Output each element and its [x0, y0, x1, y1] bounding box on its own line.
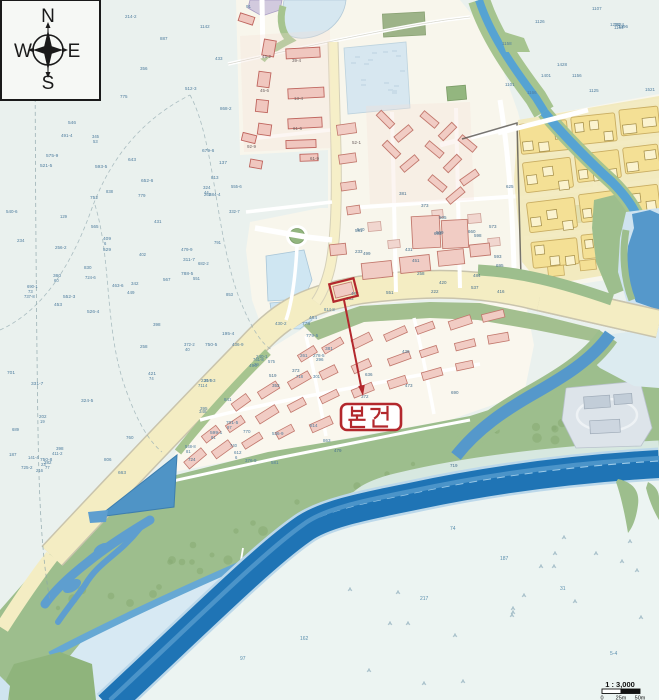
- svg-text:565: 565: [91, 224, 99, 229]
- svg-text:373: 373: [292, 368, 300, 373]
- svg-text:725-2: 725-2: [21, 465, 33, 470]
- svg-text:416: 416: [497, 289, 505, 294]
- svg-text:724: 724: [188, 457, 196, 462]
- svg-text:195-4: 195-4: [222, 331, 235, 337]
- svg-text:214-2: 214-2: [125, 14, 137, 19]
- svg-text:381: 381: [399, 191, 407, 196]
- svg-text:31: 31: [560, 586, 566, 592]
- svg-text:479: 479: [334, 448, 342, 453]
- svg-text:1125: 1125: [589, 88, 599, 93]
- svg-text:162: 162: [300, 636, 309, 642]
- svg-text:1126: 1126: [535, 19, 545, 24]
- svg-text:1401: 1401: [541, 73, 552, 78]
- svg-text:551: 551: [386, 290, 394, 295]
- svg-text:679-6: 679-6: [202, 148, 215, 154]
- svg-text:529: 529: [103, 247, 111, 253]
- svg-text:536-9: 536-9: [272, 431, 284, 436]
- svg-text:752: 752: [90, 195, 98, 201]
- svg-text:433: 433: [215, 56, 223, 61]
- svg-text:342: 342: [131, 281, 139, 286]
- svg-text:779-5: 779-5: [306, 333, 319, 339]
- svg-text:439: 439: [402, 349, 410, 354]
- svg-text:682-2: 682-2: [198, 261, 209, 266]
- svg-text:868-2: 868-2: [220, 106, 232, 111]
- svg-text:395: 395: [200, 406, 208, 411]
- svg-text:373: 373: [421, 203, 429, 208]
- svg-text:61-9: 61-9: [310, 156, 320, 161]
- svg-text:652-6: 652-6: [141, 178, 154, 184]
- svg-text:453: 453: [54, 302, 62, 308]
- svg-text:262: 262: [204, 192, 212, 197]
- svg-text:376-9: 376-9: [245, 458, 257, 463]
- svg-text:240-1: 240-1: [256, 354, 268, 359]
- svg-text:519: 519: [269, 373, 277, 378]
- svg-text:356: 356: [140, 66, 148, 71]
- svg-text:301: 301: [313, 374, 321, 379]
- svg-text:60: 60: [54, 278, 59, 283]
- svg-text:505: 505: [439, 215, 447, 220]
- svg-text:540-6: 540-6: [6, 209, 18, 214]
- svg-text:750-5: 750-5: [205, 342, 218, 348]
- svg-text:740: 740: [230, 443, 238, 448]
- svg-text:23: 23: [41, 462, 46, 467]
- svg-text:81: 81: [211, 435, 216, 440]
- svg-text:39-4: 39-4: [292, 58, 302, 63]
- svg-text:490: 490: [249, 363, 257, 369]
- svg-text:552-3: 552-3: [63, 294, 76, 300]
- svg-text:719: 719: [450, 463, 458, 468]
- svg-text:1156: 1156: [572, 73, 582, 78]
- svg-text:484: 484: [473, 273, 481, 278]
- svg-text:770: 770: [243, 429, 251, 434]
- svg-text:575: 575: [268, 359, 276, 364]
- svg-text:332-7: 332-7: [229, 209, 240, 214]
- svg-text:77: 77: [45, 465, 50, 470]
- svg-text:449: 449: [127, 290, 135, 295]
- svg-text:1 : 3,000: 1 : 3,000: [605, 680, 635, 689]
- svg-text:463-6: 463-6: [112, 283, 124, 288]
- svg-text:526-4: 526-4: [87, 309, 100, 315]
- svg-text:737-8: 737-8: [24, 294, 35, 299]
- svg-text:261: 261: [300, 353, 308, 358]
- svg-text:258: 258: [417, 271, 425, 276]
- svg-text:187: 187: [9, 452, 17, 457]
- svg-text:724-6: 724-6: [85, 275, 96, 280]
- svg-text:581: 581: [271, 460, 279, 465]
- svg-text:258: 258: [140, 344, 148, 349]
- svg-text:689: 689: [12, 427, 20, 432]
- svg-text:551: 551: [193, 276, 201, 281]
- svg-text:695: 695: [496, 263, 504, 268]
- svg-text:636: 636: [365, 372, 373, 377]
- svg-text:567: 567: [163, 277, 171, 282]
- svg-text:25m: 25m: [616, 696, 627, 700]
- svg-text:830: 830: [84, 265, 92, 270]
- svg-text:97: 97: [227, 425, 232, 430]
- svg-text:451: 451: [412, 258, 420, 263]
- svg-text:491-4: 491-4: [61, 133, 73, 138]
- svg-text:50m: 50m: [635, 696, 646, 700]
- svg-text:788-5: 788-5: [181, 271, 194, 277]
- svg-text:660: 660: [468, 229, 476, 234]
- svg-text:838: 838: [106, 189, 114, 194]
- svg-text:324-5: 324-5: [81, 398, 94, 404]
- svg-text:760: 760: [126, 435, 134, 440]
- svg-text:331-7: 331-7: [31, 381, 44, 387]
- svg-text:1158: 1158: [502, 41, 512, 46]
- svg-text:19: 19: [40, 419, 45, 424]
- svg-text:690: 690: [451, 390, 459, 395]
- svg-text:512-3: 512-3: [185, 86, 197, 91]
- svg-text:372: 372: [361, 394, 369, 399]
- svg-text:81: 81: [186, 449, 191, 454]
- svg-text:778: 778: [302, 321, 310, 327]
- svg-text:555-6: 555-6: [231, 184, 242, 189]
- svg-text:521-5: 521-5: [40, 163, 53, 169]
- svg-text:499: 499: [363, 251, 371, 256]
- svg-text:296: 296: [316, 357, 324, 362]
- svg-text:593-5: 593-5: [95, 164, 108, 170]
- svg-text:643: 643: [128, 157, 136, 163]
- svg-text:1166: 1166: [527, 90, 537, 95]
- svg-text:411-2: 411-2: [52, 451, 63, 456]
- svg-text:420: 420: [439, 280, 447, 285]
- svg-text:593: 593: [494, 254, 502, 259]
- svg-text:402: 402: [139, 252, 147, 257]
- svg-text:239-5: 239-5: [201, 378, 213, 383]
- svg-text:222: 222: [431, 289, 439, 294]
- svg-text:1521: 1521: [645, 87, 656, 92]
- svg-text:701: 701: [7, 370, 15, 376]
- svg-text:473: 473: [405, 383, 413, 388]
- svg-text:216: 216: [36, 468, 44, 473]
- svg-text:5-4: 5-4: [610, 651, 617, 657]
- svg-text:625: 625: [506, 184, 514, 189]
- svg-text:256-2: 256-2: [55, 245, 67, 250]
- svg-text:575-9: 575-9: [46, 153, 59, 159]
- svg-text:233: 233: [355, 249, 363, 254]
- svg-text:853: 853: [226, 292, 234, 297]
- svg-text:775: 775: [120, 94, 128, 99]
- svg-text:137: 137: [219, 160, 227, 166]
- svg-text:45-2: 45-2: [262, 54, 272, 59]
- svg-text:92-9: 92-9: [247, 144, 257, 149]
- svg-text:806: 806: [104, 457, 112, 462]
- svg-text:718: 718: [296, 374, 304, 379]
- svg-text:61-6: 61-6: [293, 126, 303, 131]
- svg-text:1107: 1107: [592, 6, 602, 11]
- svg-text:74: 74: [450, 526, 456, 532]
- svg-text:217: 217: [420, 596, 429, 602]
- svg-text:431: 431: [405, 247, 413, 252]
- svg-text:791: 791: [214, 240, 222, 245]
- svg-text:479-9: 479-9: [181, 247, 193, 252]
- svg-text:814-8: 814-8: [324, 307, 335, 312]
- svg-text:779: 779: [138, 193, 146, 198]
- svg-text:1142: 1142: [200, 24, 210, 29]
- svg-text:40: 40: [185, 347, 190, 352]
- svg-text:311-7: 311-7: [183, 257, 195, 263]
- svg-text:53: 53: [93, 139, 98, 144]
- svg-text:129: 129: [60, 214, 68, 219]
- svg-text:45-6: 45-6: [260, 88, 270, 93]
- svg-text:234: 234: [17, 238, 25, 243]
- svg-text:N: N: [41, 6, 55, 27]
- svg-text:381: 381: [325, 346, 333, 352]
- svg-text:141-4: 141-4: [28, 455, 39, 460]
- svg-text:13-4: 13-4: [294, 96, 304, 101]
- svg-text:711: 711: [198, 383, 205, 388]
- svg-text:1428: 1428: [557, 62, 568, 67]
- svg-text:398: 398: [153, 322, 161, 327]
- svg-text:431: 431: [154, 219, 162, 224]
- svg-text:187: 187: [500, 556, 509, 562]
- svg-text:509: 509: [436, 230, 444, 235]
- svg-text:E: E: [68, 41, 81, 62]
- svg-text:581: 581: [355, 228, 363, 233]
- svg-text:573: 573: [489, 224, 497, 229]
- svg-text:546: 546: [68, 120, 76, 126]
- svg-text:0: 0: [600, 696, 603, 700]
- svg-text:W: W: [14, 41, 32, 62]
- svg-text:1101: 1101: [505, 82, 515, 87]
- svg-text:436-9: 436-9: [232, 342, 244, 347]
- svg-text:663: 663: [118, 470, 126, 476]
- svg-text:97: 97: [240, 656, 246, 662]
- svg-text:S: S: [42, 73, 55, 94]
- svg-text:353: 353: [272, 383, 280, 388]
- svg-text:813: 813: [211, 175, 219, 180]
- svg-text:1496: 1496: [618, 24, 629, 29]
- svg-text:484: 484: [309, 315, 317, 321]
- svg-text:74: 74: [149, 376, 154, 381]
- svg-text:887: 887: [160, 36, 168, 41]
- svg-text:841: 841: [224, 397, 232, 402]
- svg-text:91: 91: [246, 4, 252, 9]
- svg-text:52-1: 52-1: [352, 140, 362, 145]
- svg-text:537: 537: [471, 285, 479, 290]
- svg-text:814: 814: [310, 423, 318, 428]
- svg-text:430-2: 430-2: [275, 321, 287, 326]
- svg-text:863: 863: [323, 438, 331, 443]
